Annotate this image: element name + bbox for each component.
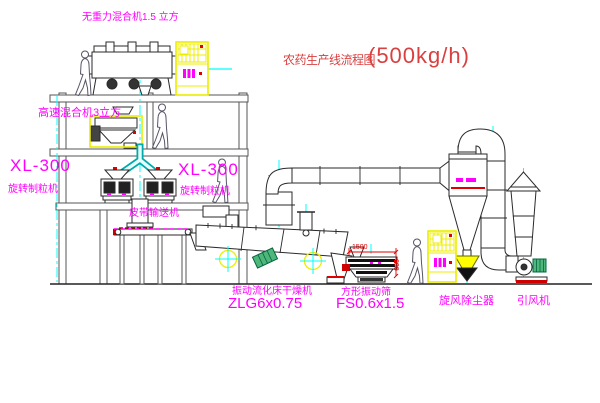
cabinet-text-mark: [183, 69, 195, 78]
dimension-600-label: 600: [392, 259, 399, 271]
cyclone-label: 旋风除尘器: [439, 296, 494, 307]
granulator-right-name-label: 旋转制粒机: [180, 187, 230, 197]
fan-label: 引风机: [517, 296, 550, 307]
induced-draft-fan: [506, 256, 547, 283]
mixer-paddle: [129, 79, 139, 89]
fan-base: [516, 280, 547, 283]
screen-discharge-spout: [342, 264, 350, 271]
gravity-free-mixer: [86, 42, 178, 95]
mixer-paddle: [107, 79, 117, 89]
fan-motor: [533, 259, 546, 272]
diagram-title-capacity: (500kg/h): [368, 45, 470, 67]
belt-conveyor: [113, 229, 206, 284]
structure-column: [59, 93, 66, 284]
granulator-right: [144, 167, 176, 203]
screen-model-label: FS0.6x1.5: [336, 296, 404, 311]
dimension-1500-label: 1500: [352, 244, 368, 251]
granulator-left-name-label: 旋转制粒机: [8, 185, 58, 195]
granulator-left-model-label: XL-300: [10, 157, 71, 174]
indicator-light: [199, 72, 202, 75]
person-second-floor: [153, 104, 169, 149]
cad-flow-diagram: 无重力混合机1.5 立方 农药生产线流程图 (500kg/h) 高速混合机3立方…: [0, 0, 600, 403]
diagram-title: 农药生产线流程图: [283, 54, 375, 66]
horizontal-duct: [292, 159, 452, 193]
indicator-light: [449, 234, 452, 237]
structure-floor: [50, 149, 248, 156]
mixer-paddle: [151, 79, 161, 89]
belt-conveyor-label: 皮带输送机: [129, 209, 179, 219]
structure-floor: [50, 95, 248, 102]
exhaust-riser-duct: [263, 168, 295, 225]
cyclone-text-mark: [466, 178, 476, 182]
gravity-mixer-label: 无重力混合机1.5 立方: [82, 13, 179, 23]
dryer-model-label: ZLG6x0.75: [228, 296, 302, 311]
cabinet-text-mark: [434, 258, 446, 267]
stack-rain-cap: [507, 172, 540, 191]
indicator-light: [449, 261, 452, 264]
cyclone-text-mark: [456, 178, 463, 182]
person-ground: [408, 239, 424, 284]
indicator-light: [200, 45, 203, 48]
cyclone-discharge: [455, 256, 479, 268]
control-cabinet-top: [176, 42, 208, 95]
vibration-target-left: [215, 246, 241, 272]
structure-column: [100, 210, 107, 284]
granulator-right-model-label: XL-300: [178, 161, 239, 178]
structure-column: [239, 93, 247, 284]
control-cabinet-bottom: [428, 231, 456, 282]
exhaust-stack: [507, 172, 540, 256]
high-speed-mixer-label: 高速混合机3立方: [38, 108, 121, 119]
discharge-valve: [457, 268, 477, 281]
